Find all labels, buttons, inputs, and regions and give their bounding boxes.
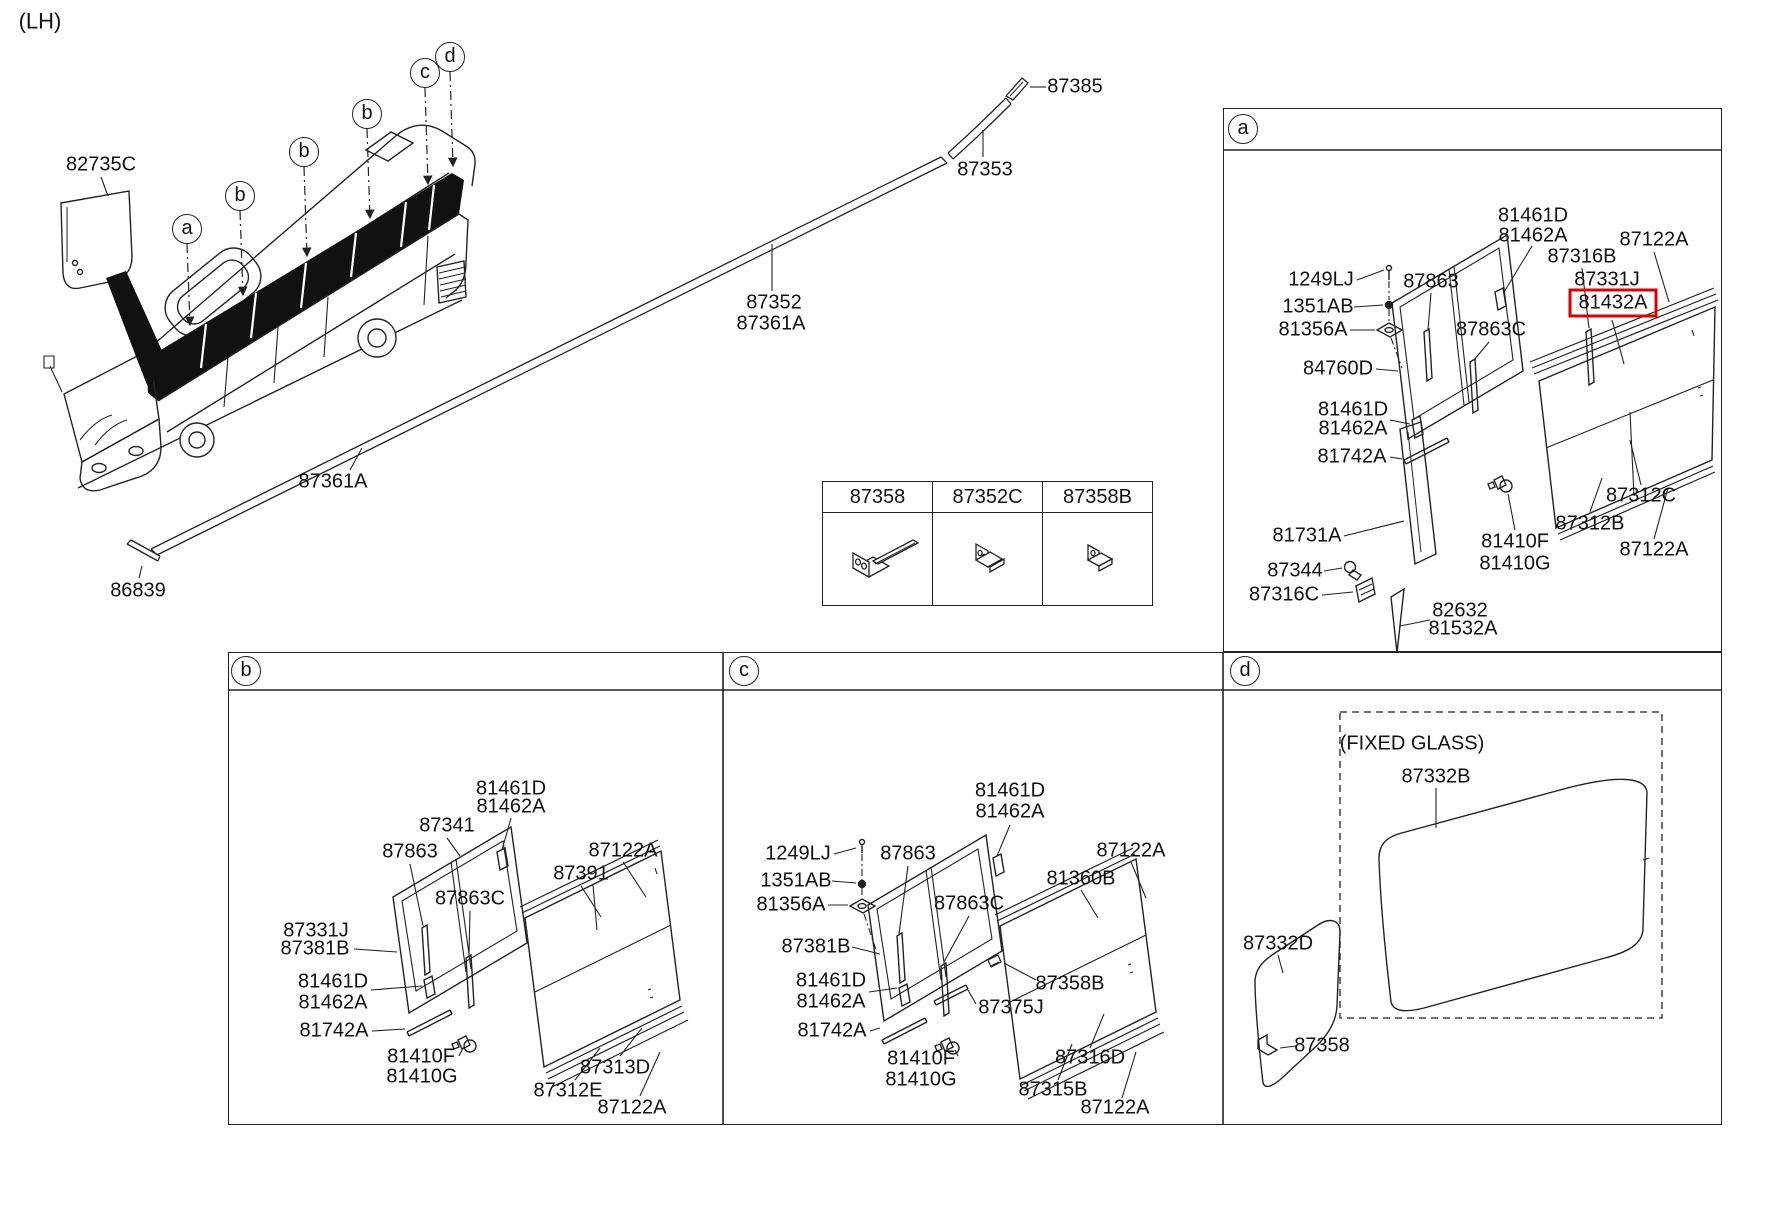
part-label: 82735C <box>66 155 136 176</box>
part-label: 81462A <box>1499 226 1568 247</box>
part-label: 87122A <box>1620 230 1689 251</box>
part-label: 87316B <box>1548 247 1617 268</box>
callout-a: a <box>172 214 202 244</box>
part-label: 81461D <box>796 971 866 992</box>
part-label: 87312E <box>534 1081 603 1102</box>
part-label: 87863 <box>1403 272 1459 293</box>
part-label: 81462A <box>1319 419 1388 440</box>
part-label: 1249LJ <box>1288 270 1354 291</box>
part-label: 84760D <box>1303 359 1373 380</box>
part-label: 81410F <box>387 1047 455 1068</box>
panel-c-letter: c <box>729 656 759 686</box>
part-label: 81742A <box>1318 447 1387 468</box>
part-label: 81410F <box>887 1049 955 1070</box>
part-label: 87332B <box>1402 767 1471 788</box>
part-label: 87122A <box>1097 841 1166 862</box>
side-label: (LH) <box>19 9 62 32</box>
part-label: 87361A <box>299 472 368 493</box>
part-label: 1351AB <box>760 871 831 892</box>
part-label: 81462A <box>299 993 368 1014</box>
part-label: 87344 <box>1267 561 1323 582</box>
panel-b-letter: b <box>231 656 261 686</box>
part-label: 81410G <box>885 1070 956 1091</box>
part-label: 81360B <box>1047 869 1116 890</box>
part-label: 81461D <box>1498 206 1568 227</box>
panel-d-letter: d <box>1230 656 1260 686</box>
part-label: 87313D <box>580 1058 650 1079</box>
parts-diagram-page: { "side_label": "(LH)", "colors": { "ink… <box>0 0 1772 1211</box>
part-label: 87358 <box>1294 1036 1350 1057</box>
part-label: 81461D <box>975 781 1045 802</box>
part-label: 87341 <box>419 816 475 837</box>
part-label: 81461D <box>298 972 368 993</box>
part-label: 87863 <box>382 842 438 863</box>
part-label: 87122A <box>589 841 658 862</box>
part-label: 81731A <box>1273 526 1342 547</box>
part-label: 87316D <box>1055 1048 1125 1069</box>
part-label: 86839 <box>110 581 166 602</box>
part-label: 87863 <box>880 844 936 865</box>
part-label: 87375J <box>978 998 1044 1019</box>
part-label: 87332D <box>1243 934 1313 955</box>
part-label: 87863C <box>1456 320 1526 341</box>
callout-d: d <box>435 42 465 72</box>
part-label: 81462A <box>477 797 546 818</box>
part-label: 87122A <box>1620 540 1689 561</box>
part-label: 87381B <box>782 937 851 958</box>
part-label: 1249LJ <box>765 844 831 865</box>
part-label: 87316C <box>1249 585 1319 606</box>
part-label: 87385 <box>1047 77 1103 98</box>
callout-b: b <box>225 181 255 211</box>
part-label: 87122A <box>1081 1098 1150 1119</box>
highlighted-part-81432A[interactable]: 81432A <box>1569 289 1658 318</box>
part-label: 81356A <box>757 895 826 916</box>
part-label: 81742A <box>798 1021 867 1042</box>
fixed-glass-caption: (FIXED GLASS) <box>1340 734 1484 755</box>
panel-a-letter: a <box>1228 114 1258 144</box>
callout-b: b <box>289 137 319 167</box>
part-label: 81742A <box>300 1021 369 1042</box>
part-label: 87312C <box>1606 486 1676 507</box>
part-label: 87391 <box>553 864 609 885</box>
part-label: 87122A <box>598 1098 667 1119</box>
part-label: 81410F <box>1481 532 1549 553</box>
part-label: 87358B <box>1036 974 1105 995</box>
part-label: 81462A <box>797 992 866 1013</box>
part-label: 81356A <box>1279 320 1348 341</box>
part-label: 1351AB <box>1282 297 1353 318</box>
part-label: 81532A <box>1429 619 1498 640</box>
part-label: 87863C <box>435 889 505 910</box>
part-label: 87331J <box>1574 270 1640 291</box>
part-label: 81410G <box>386 1067 457 1088</box>
labels-overlay: (LH)82735C87385873538735287361A87361A868… <box>0 0 1772 1211</box>
part-label: 87312B <box>1556 514 1625 535</box>
part-label: 87361A <box>737 314 806 335</box>
part-label: 87353 <box>957 160 1013 181</box>
part-label: 81410G <box>1479 554 1550 575</box>
part-label: 87381B <box>281 939 350 960</box>
callout-b: b <box>352 99 382 129</box>
part-label: 87863C <box>934 894 1004 915</box>
part-label: 81462A <box>976 802 1045 823</box>
part-label: 87315B <box>1019 1080 1088 1101</box>
part-label: 87352 <box>746 293 802 314</box>
